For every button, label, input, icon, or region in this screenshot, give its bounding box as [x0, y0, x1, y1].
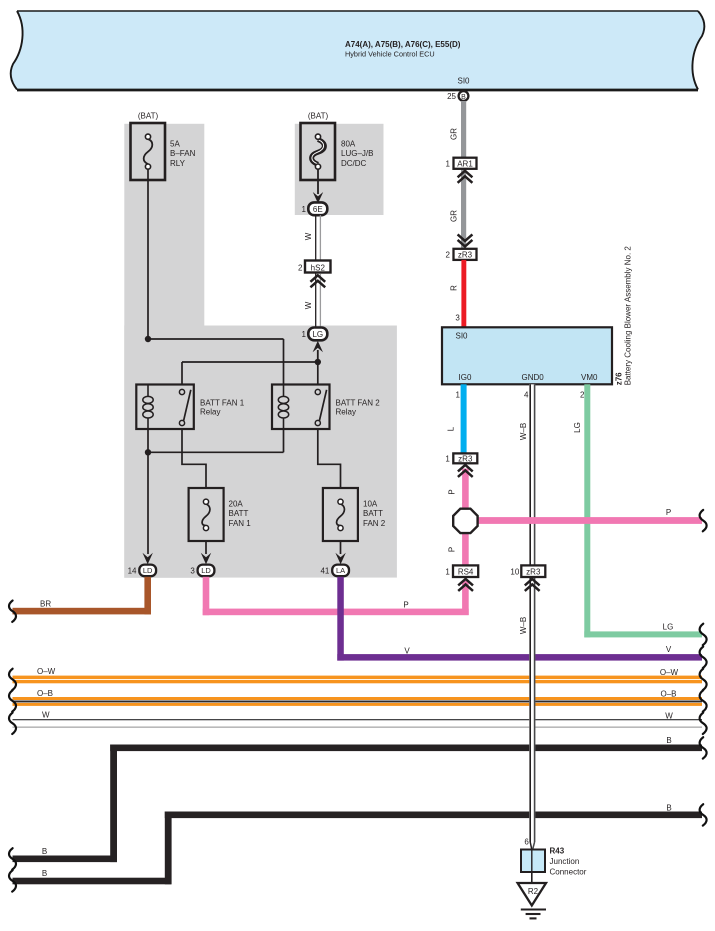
svg-text:LUG–J/B: LUG–J/B [341, 149, 373, 158]
svg-text:2: 2 [298, 264, 303, 273]
svg-text:V: V [666, 645, 672, 654]
svg-text:Battery Cooling Blower Assembl: Battery Cooling Blower Assembly No. 2 [624, 246, 633, 386]
svg-text:BATT: BATT [229, 509, 249, 518]
svg-text:zR3: zR3 [458, 454, 473, 463]
svg-text:hS2: hS2 [311, 264, 326, 273]
svg-text:Connector: Connector [550, 868, 587, 877]
svg-text:SI0: SI0 [457, 76, 470, 85]
svg-text:W–B: W–B [519, 423, 528, 440]
svg-text:AR1: AR1 [457, 160, 473, 169]
svg-text:LA: LA [336, 566, 345, 575]
svg-text:25: 25 [447, 92, 456, 101]
svg-text:RLY: RLY [170, 159, 186, 168]
svg-text:1: 1 [302, 330, 307, 339]
svg-text:R43: R43 [550, 847, 565, 856]
svg-text:LG: LG [573, 422, 582, 433]
svg-text:P: P [403, 600, 408, 609]
svg-text:GR: GR [450, 128, 459, 140]
svg-text:W: W [42, 711, 50, 720]
svg-text:80A: 80A [341, 140, 356, 149]
svg-text:1: 1 [445, 568, 450, 577]
svg-text:BATT FAN 1: BATT FAN 1 [200, 399, 245, 408]
svg-text:L: L [447, 426, 456, 431]
svg-text:1: 1 [446, 160, 451, 169]
svg-text:6: 6 [524, 837, 529, 846]
svg-text:Hybrid Vehicle Control ECU: Hybrid Vehicle Control ECU [345, 50, 435, 59]
svg-text:O–W: O–W [37, 667, 56, 676]
svg-text:DC/DC: DC/DC [341, 159, 367, 168]
svg-text:5A: 5A [170, 140, 180, 149]
svg-text:41: 41 [320, 566, 329, 575]
svg-text:LG: LG [312, 330, 323, 339]
svg-text:Relay: Relay [200, 407, 220, 416]
svg-text:1: 1 [302, 205, 307, 214]
svg-text:10A: 10A [363, 500, 378, 509]
svg-text:FAN 1: FAN 1 [229, 519, 252, 528]
svg-text:P: P [448, 547, 457, 552]
svg-text:R: R [450, 285, 459, 291]
svg-text:(BAT): (BAT) [138, 111, 159, 120]
svg-text:BATT FAN 2: BATT FAN 2 [336, 399, 381, 408]
svg-text:LD: LD [201, 566, 211, 575]
svg-text:B: B [666, 736, 671, 745]
svg-text:P: P [666, 508, 671, 517]
svg-text:GR: GR [450, 210, 459, 222]
svg-text:2: 2 [580, 391, 585, 400]
svg-text:V: V [404, 646, 410, 655]
svg-text:O–B: O–B [37, 689, 53, 698]
svg-text:W: W [304, 232, 313, 240]
svg-text:A74(A), A75(B), A76(C), E55(D): A74(A), A75(B), A76(C), E55(D) [345, 40, 461, 49]
svg-text:10: 10 [510, 568, 519, 577]
svg-text:O–W: O–W [660, 668, 679, 677]
svg-text:1: 1 [445, 454, 450, 463]
svg-text:BR: BR [40, 599, 51, 608]
svg-text:3: 3 [455, 314, 460, 323]
svg-text:LG: LG [663, 623, 674, 632]
svg-text:4: 4 [524, 391, 529, 400]
svg-text:B: B [42, 869, 47, 878]
svg-text:VM0: VM0 [581, 373, 598, 382]
svg-text:BATT: BATT [363, 509, 383, 518]
svg-text:FAN 2: FAN 2 [363, 519, 386, 528]
svg-text:B: B [461, 94, 466, 101]
svg-text:GND0: GND0 [522, 373, 545, 382]
svg-text:2: 2 [446, 251, 451, 260]
svg-text:zR3: zR3 [458, 251, 473, 260]
svg-text:14: 14 [128, 566, 137, 575]
svg-text:O–B: O–B [660, 690, 676, 699]
svg-text:20A: 20A [229, 500, 244, 509]
svg-text:W: W [665, 712, 673, 721]
svg-text:1: 1 [456, 391, 461, 400]
svg-text:R2: R2 [528, 887, 539, 896]
svg-text:P: P [448, 489, 457, 494]
svg-text:W–B: W–B [519, 617, 528, 634]
svg-text:3: 3 [190, 566, 195, 575]
svg-text:(BAT): (BAT) [308, 111, 329, 120]
svg-text:B–FAN: B–FAN [170, 149, 196, 158]
svg-text:W: W [304, 301, 313, 309]
svg-text:z76: z76 [615, 372, 624, 385]
svg-text:zR3: zR3 [526, 568, 541, 577]
svg-text:Junction: Junction [550, 857, 580, 866]
svg-text:RS4: RS4 [458, 568, 474, 577]
svg-text:Relay: Relay [336, 407, 356, 416]
svg-text:6E: 6E [313, 205, 323, 214]
svg-text:IG0: IG0 [459, 373, 472, 382]
svg-text:B: B [42, 847, 47, 856]
svg-text:LD: LD [143, 566, 153, 575]
svg-text:B: B [666, 803, 671, 812]
svg-text:SI0: SI0 [456, 332, 469, 341]
